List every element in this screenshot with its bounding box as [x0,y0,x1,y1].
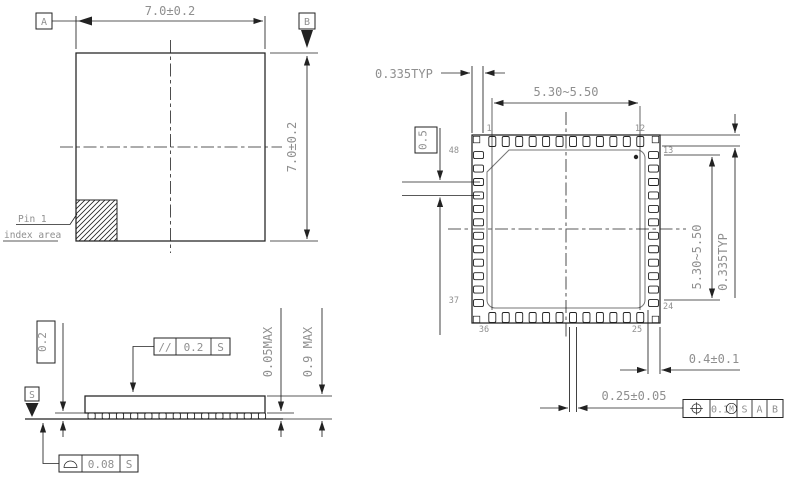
lead-pin [474,219,484,226]
lead-pin [230,413,237,419]
lead-pin [202,413,209,419]
lead-pin [556,137,563,147]
lead-pin [516,313,523,323]
lead-pin [145,413,152,419]
lead-pin [543,137,550,147]
pin1-index-area-hatch [76,200,117,241]
lead-pin [649,300,659,307]
lead-pin [489,313,496,323]
lead-pin [649,273,659,280]
parallelism-datum: S [217,341,224,354]
dim-edge-pitch-right-label: 0.335TYP [716,233,730,291]
dim-span-right-label: 5.30~5.50 [690,224,704,289]
dim-height-label: 7.0±0.2 [285,122,299,173]
datum-s-label: S [29,390,35,401]
lead-pin [474,300,484,307]
pin1-note-line2: index area [4,230,61,241]
position-datum-2: A [756,405,762,416]
lead-pin [596,137,603,147]
dim-lead-length-label: 0.4±0.1 [689,352,740,366]
lead-pin [474,205,484,212]
lead-pin [570,313,577,323]
pin-number-37: 37 [449,296,459,306]
lead-pin [610,137,617,147]
lead-pin [173,413,180,419]
datum-b-triangle [301,30,313,48]
lead-pin [583,313,590,323]
pin-number-12: 12 [635,124,645,134]
dim-standoff-max-label: 0.05MAX [261,326,275,377]
lead-pin [649,259,659,266]
coplanarity-value: 0.08 [88,458,115,471]
lead-pin [116,413,123,419]
position-datum-3: B [772,405,778,416]
pin-number-25: 25 [632,325,642,335]
lead-pin [649,232,659,239]
lead-pin [474,152,484,159]
bottom-view: 0.335TYP 5.30~5.50 0.335TYP 5.30~5.50 0.… [375,66,783,418]
pin-number-36: 36 [479,325,489,335]
lead-pin [649,219,659,226]
lead-pin [649,152,659,159]
parallelism-icon: // [158,341,171,354]
lead-pin [187,413,194,419]
lead-pin [516,137,523,147]
pin-number-24: 24 [663,302,673,312]
qfn-drawing-canvas: A 7.0±0.2 B 7.0±0.2 Pin 1 index area 0.2… [0,0,791,479]
position-datum-1: S [741,405,747,416]
lead-pin [131,413,138,419]
lead-pin [623,137,630,147]
datum-a-label: A [41,17,47,28]
lead-pin [610,313,617,323]
lead-pin [529,137,536,147]
pad-corner-dot [634,155,638,159]
lead-pin [474,165,484,172]
lead-pin [649,165,659,172]
lead-pin [649,205,659,212]
lead-pin [649,246,659,253]
lead-pin [216,413,223,419]
lead-pin [649,192,659,199]
lead-pin [649,179,659,186]
lead-pin [474,232,484,239]
lead-pin [637,313,644,323]
dim-lead-width-label: 0.25±0.05 [601,389,666,403]
side-lead-row [88,413,266,419]
pin-number-13: 13 [663,146,673,156]
package-side-body [85,396,265,413]
lead-pin [474,259,484,266]
dim-pitch-basic-label: 0.5 [417,130,430,150]
lead-pin [244,413,251,419]
pin-number-48: 48 [449,146,459,156]
coplanarity-datum: S [126,458,133,471]
fcf-leader-arrow [43,423,59,464]
dim-width-label: 7.0±0.2 [145,4,196,18]
lead-pin [502,313,509,323]
lead-pin [583,137,590,147]
lead-pin [88,413,95,419]
lead-pin [474,246,484,253]
lead-pin [623,313,630,323]
dim-edge-pitch-top-label: 0.335TYP [375,67,433,81]
lead-pin [543,313,550,323]
lead-pin [570,137,577,147]
top-view: A 7.0±0.2 B 7.0±0.2 Pin 1 index area [3,4,318,253]
lead-pin [258,413,265,419]
datum-s-triangle [26,403,39,417]
lead-pin [556,313,563,323]
lead-pin [474,286,484,293]
svg-text:M: M [729,405,734,414]
lead-pin [596,313,603,323]
lead-pin [159,413,166,419]
parallelism-value: 0.2 [184,341,204,354]
lead-pin [649,286,659,293]
datum-b-label: B [304,17,310,28]
side-view: 0.2 S // 0.2 S 0.05MAX 0.9 MAX 0.08 S [25,308,332,472]
pin1-note-line1: Pin 1 [18,214,47,225]
lead-pin [529,313,536,323]
fcf-leader-arrow [133,347,154,393]
dim-span-top-label: 5.30~5.50 [533,85,598,99]
datum-a-triangle [78,17,92,26]
dim-height-max-label: 0.9 MAX [301,326,315,377]
lead-pin [102,413,109,419]
package-outline-drawing: A 7.0±0.2 B 7.0±0.2 Pin 1 index area 0.2… [0,0,791,479]
dim-standoff-basic-label: 0.2 [36,332,49,352]
pin-number-1: 1 [486,124,491,134]
lead-pin [474,273,484,280]
lead-pin [502,137,509,147]
